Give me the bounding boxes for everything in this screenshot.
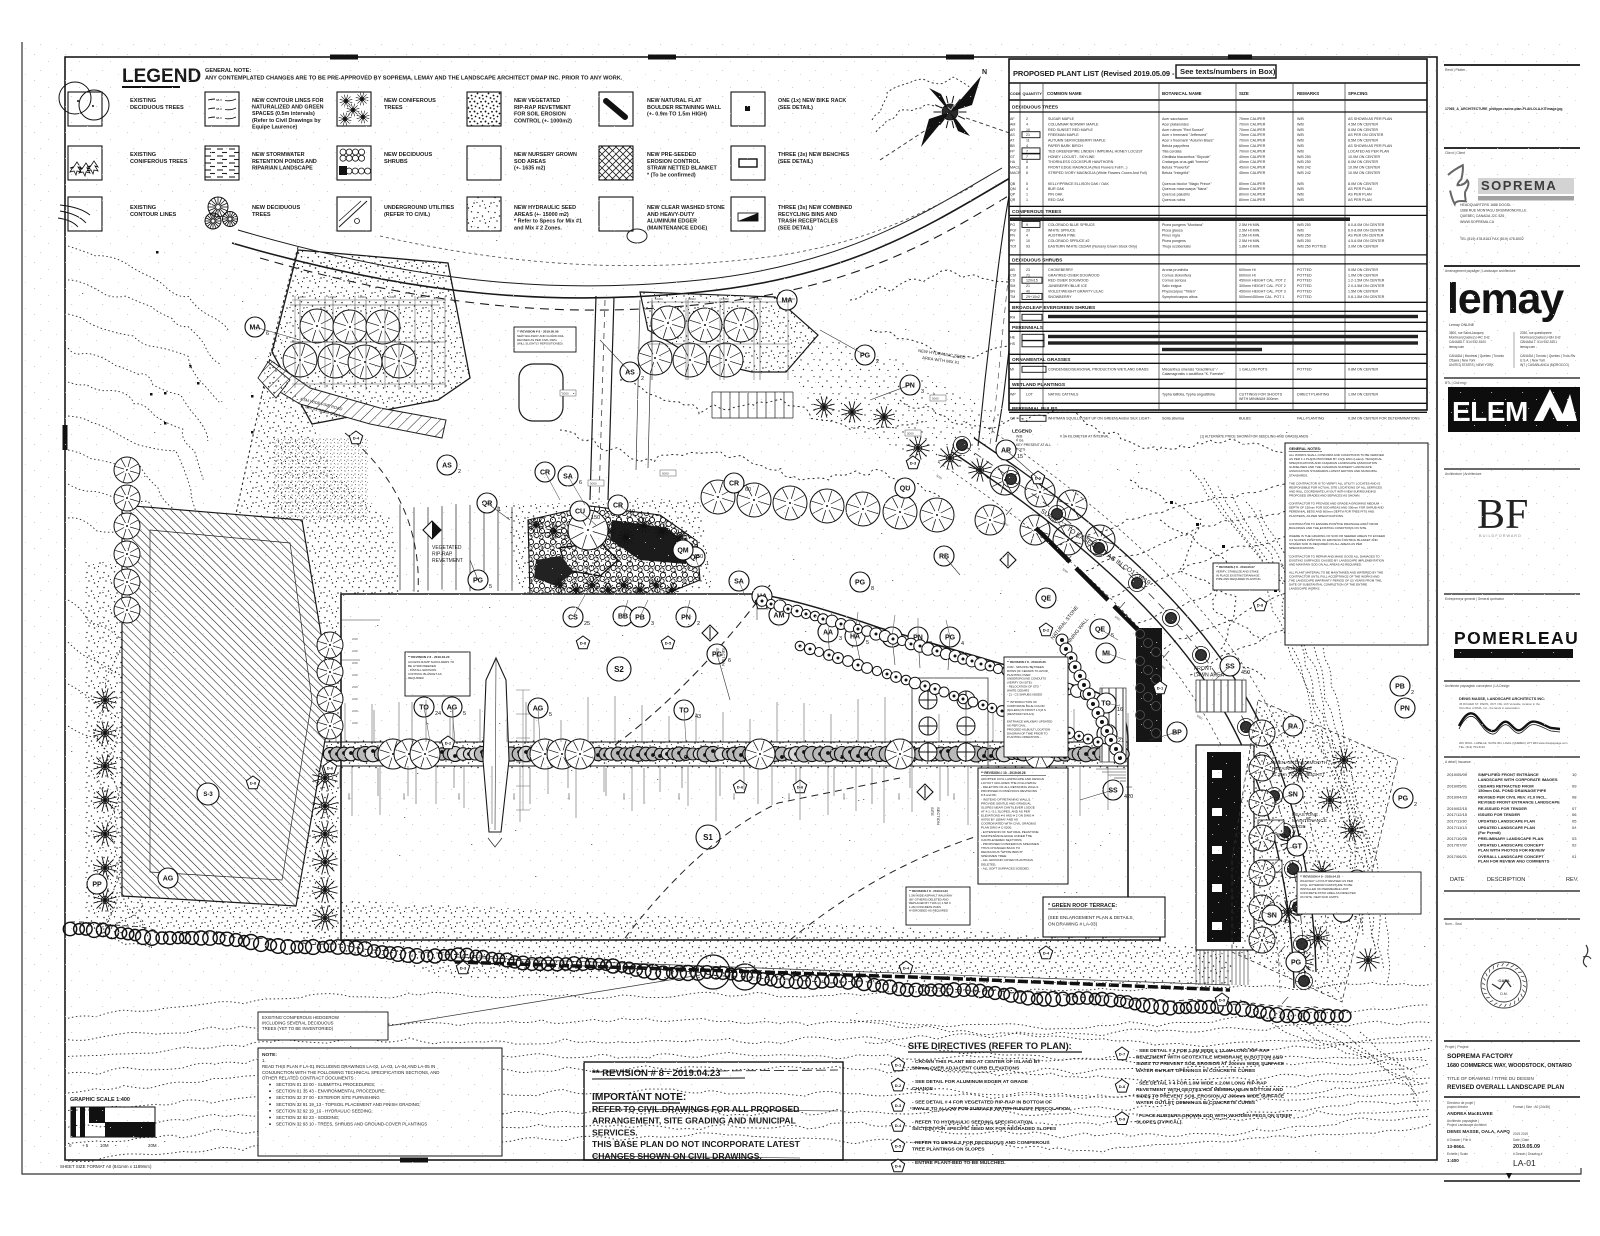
svg-text:Scilla siberica: Scilla siberica (1162, 416, 1184, 420)
svg-text:DECIDUOUS TREES: DECIDUOUS TREES (1012, 105, 1059, 111)
svg-text:QB: QB (1010, 182, 1016, 186)
svg-text:CONDENSED/SEASONAL PRODUCTION: CONDENSED/SEASONAL PRODUCTION WETLAND GR… (1048, 367, 1149, 371)
svg-text:70mm CALIPER: 70mm CALIPER (1239, 149, 1266, 153)
svg-text:SM: SM (1010, 284, 1015, 288)
svg-text:10.0M ON CENTER: 10.0M ON CENTER (1348, 155, 1381, 159)
svg-text:0.8-1.5M ON CENTER: 0.8-1.5M ON CENTER (1348, 295, 1385, 299)
svg-text:70mm CALIPER: 70mm CALIPER (1239, 117, 1266, 121)
svg-text:W/B 250: W/B 250 (1297, 155, 1311, 159)
svg-text:3.0M ON CENTER: 3.0M ON CENTER (1348, 245, 1379, 249)
svg-text:PAPER BARK BIRCH: PAPER BARK BIRCH (1048, 144, 1083, 148)
svg-text:BB: BB (1010, 144, 1015, 148)
svg-text:4.5M ON CENTER: 4.5M ON CENTER (1348, 122, 1379, 126)
svg-text:THORNLESS COCKSPUR HAWTHORN: THORNLESS COCKSPUR HAWTHORN (1048, 160, 1114, 164)
svg-text:80mm CALIPER: 80mm CALIPER (1239, 187, 1266, 191)
svg-text:W/B: W/B (1297, 128, 1304, 132)
svg-text:W/B: W/B (1297, 198, 1304, 202)
svg-text:Symphoricarpos albus: Symphoricarpos albus (1162, 295, 1198, 299)
svg-text:Quercus macrocarpa "Nana": Quercus macrocarpa "Nana" (1162, 187, 1208, 191)
svg-text:BULBS: BULBS (1239, 416, 1251, 420)
svg-text:PROPOSED PLANT LIST (Revised 2: PROPOSED PLANT LIST (Revised 2019.05.09 … (1013, 69, 1175, 78)
svg-text:KEY PRESENT AT ALL: KEY PRESENT AT ALL (1016, 443, 1051, 447)
svg-text:AS PER ON CENTER: AS PER ON CENTER (1348, 133, 1384, 137)
svg-text:71: 71 (1026, 273, 1030, 277)
svg-text:RED OAK: RED OAK (1048, 198, 1065, 202)
svg-text:AUSTRIAN PINE: AUSTRIAN PINE (1048, 234, 1076, 238)
svg-text:PIN OAK: PIN OAK (1048, 193, 1063, 197)
svg-text:W/B: W/B (1297, 117, 1304, 121)
svg-text:COLORADO BLUE SPRUCE: COLORADO BLUE SPRUCE (1048, 223, 1096, 227)
svg-text:4: 4 (1026, 144, 1028, 148)
svg-text:W/B 250: W/B 250 (1297, 234, 1311, 238)
svg-text:CS: CS (1010, 279, 1016, 283)
svg-text:KELLY/PRINCE ELLISON OAK / OAK: KELLY/PRINCE ELLISON OAK / OAK (1048, 182, 1109, 186)
svg-text:HE: HE (1010, 335, 1016, 339)
svg-text:NATIVE CATTAILS: NATIVE CATTAILS (1048, 392, 1079, 396)
svg-text:450mm HEIGHT CAL. POT 2: 450mm HEIGHT CAL. POT 2 (1239, 279, 1286, 283)
svg-text:W/B: W/B (1297, 122, 1304, 126)
svg-text:POTTED: POTTED (1297, 268, 1312, 272)
svg-text:Acer saccharum: Acer saccharum (1162, 117, 1188, 121)
svg-text:POTTED: POTTED (1297, 295, 1312, 299)
svg-text:LOT: LOT (1026, 392, 1034, 396)
svg-text:W/B 250 POTTED: W/B 250 POTTED (1297, 245, 1327, 249)
svg-text:GRAY/RED OSIER DOGWOOD: GRAY/RED OSIER DOGWOOD (1048, 273, 1100, 277)
svg-text:W/B: W/B (1016, 434, 1023, 438)
svg-text:W/B: W/B (1297, 149, 1304, 153)
svg-text:LOCATED AS PER PLAN: LOCATED AS PER PLAN (1348, 149, 1389, 153)
svg-text:POTTED: POTTED (1297, 290, 1312, 294)
svg-text:70mm CALIPER: 70mm CALIPER (1239, 139, 1266, 143)
svg-text:29+10x2: 29+10x2 (1026, 295, 1040, 299)
svg-text:AS SHOWN AS PER PLAN: AS SHOWN AS PER PLAN (1348, 117, 1392, 121)
svg-text:8.0M ON CENTER: 8.0M ON CENTER (1348, 182, 1379, 186)
svg-text:PG: PG (1010, 223, 1015, 227)
svg-text:Calamagrostis x acutiflora "K.: Calamagrostis x acutiflora "K. Foerster" (1162, 372, 1225, 376)
svg-text:BUR OAK: BUR OAK (1048, 187, 1065, 191)
svg-text:Cornus sericea: Cornus sericea (1162, 279, 1186, 283)
svg-text:7: 7 (1026, 149, 1028, 153)
svg-text:JUNEBERRY/BLUE ICE: JUNEBERRY/BLUE ICE (1048, 284, 1088, 288)
svg-text:1 GALLON POTS: 1 GALLON POTS (1239, 367, 1268, 371)
svg-text:WHITE SPRUCE: WHITE SPRUCE (1048, 228, 1076, 232)
svg-text:COLORADO SPRUCE #2: COLORADO SPRUCE #2 (1048, 239, 1090, 243)
svg-text:23: 23 (1026, 268, 1030, 272)
svg-text:PERENNIALS: PERENNIALS (1012, 325, 1044, 331)
svg-text:EASTERN WHITE CEDAR (Nursery G: EASTERN WHITE CEDAR (Nursery Grown Stock… (1048, 245, 1137, 249)
svg-text:ORNAMENTAL GRASSES: ORNAMENTAL GRASSES (1012, 357, 1071, 363)
svg-text:1.0M ON CENTER: 1.0M ON CENTER (1348, 273, 1379, 277)
svg-text:Picea pungens "Montana": Picea pungens "Montana" (1162, 223, 1204, 227)
svg-text:RH: RH (1010, 315, 1016, 319)
svg-text:10: 10 (1026, 128, 1030, 132)
svg-text:Acer platanoides: Acer platanoides (1162, 122, 1189, 126)
svg-text:500mm/450mm CAL. POT 1: 500mm/450mm CAL. POT 1 (1239, 295, 1284, 299)
svg-text:SUGAR MAPLE: SUGAR MAPLE (1048, 117, 1075, 121)
svg-text:1.2-1.5M ON CENTER: 1.2-1.5M ON CENTER (1348, 279, 1385, 283)
svg-text:AS PER PLAN: AS PER PLAN (1348, 198, 1372, 202)
svg-text:Betula "Integrifol": Betula "Integrifol" (1162, 171, 1190, 175)
svg-text:1.8M Ht MIN.: 1.8M Ht MIN. (1239, 245, 1260, 249)
svg-text:0.8M ON CENTER: 0.8M ON CENTER (1348, 367, 1379, 371)
svg-text:Typha latifolia, Typha angusti: Typha latifolia, Typha angustifolia (1162, 392, 1215, 396)
svg-text:AM: AM (1010, 122, 1015, 126)
svg-text:WHITMAN SQUILLS (SET UP ON GRE: WHITMAN SQUILLS (SET UP ON GREEN) And/or… (1048, 416, 1150, 420)
svg-text:VIOLET/WEIGHT GRAVITY LILAC: VIOLET/WEIGHT GRAVITY LILAC (1048, 290, 1104, 294)
svg-text:WP: WP (1010, 392, 1016, 396)
svg-text:SN: SN (1010, 290, 1015, 294)
svg-text:Crataegus crus-galli "Inermis": Crataegus crus-galli "Inermis" (1162, 160, 1210, 164)
svg-text:7: 7 (1026, 155, 1028, 159)
svg-text:450mm HEIGHT CAL. POT 3: 450mm HEIGHT CAL. POT 3 (1239, 290, 1286, 294)
svg-text:6.0M ON CENTER: 6.0M ON CENTER (1348, 160, 1379, 164)
svg-text:TED GREENSPIRE LINDEN / IMPERI: TED GREENSPIRE LINDEN / IMPERIAL HONEY L… (1048, 149, 1144, 153)
svg-text:8.5M ON CENTER: 8.5M ON CENTER (1348, 139, 1379, 143)
svg-text:POTTED: POTTED (1297, 279, 1312, 283)
svg-text:W/B 250: W/B 250 (1297, 239, 1311, 243)
svg-text:FRONT EDGE MAGNOLIA (Red Flowe: FRONT EDGE MAGNOLIA (Red Flowers Full F.… (1048, 166, 1127, 170)
svg-text:AF: AF (1010, 117, 1015, 121)
svg-text:9: 9 (1026, 223, 1028, 227)
svg-text:AB: AB (1010, 268, 1015, 272)
svg-text:Aronia prunifolia: Aronia prunifolia (1162, 268, 1188, 272)
svg-text:MACR: MACR (1010, 171, 1021, 175)
svg-text:6.0-8.0M ON CENTER: 6.0-8.0M ON CENTER (1348, 228, 1385, 232)
svg-text:Quercus palustris: Quercus palustris (1162, 193, 1190, 197)
svg-text:MI: MI (1010, 367, 1014, 371)
svg-text:W/B 242: W/B 242 (1297, 171, 1311, 175)
svg-text:4: 4 (1026, 187, 1028, 191)
svg-text:W/B: W/B (1297, 187, 1304, 191)
svg-text:PERENNIAL BULBS: PERENNIAL BULBS (1012, 406, 1058, 412)
svg-text:Acer x freemanii "Jeffersred": Acer x freemanii "Jeffersred" (1162, 133, 1208, 137)
svg-text:Cornus stolonifera: Cornus stolonifera (1162, 273, 1191, 277)
svg-text:2.5M Ht MIN.: 2.5M Ht MIN. (1239, 223, 1260, 227)
svg-text:PGf: PGf (1010, 228, 1016, 232)
svg-text:Gleditsia triacanthos "Skycole: Gleditsia triacanthos "Skycole" (1162, 155, 1211, 159)
svg-text:Picea pungens: Picea pungens (1162, 239, 1186, 243)
svg-text:# 3A KILOMETER AT INTERVAL: # 3A KILOMETER AT INTERVAL (1060, 434, 1109, 438)
svg-text:2.5M Ht MIN.: 2.5M Ht MIN. (1239, 239, 1260, 243)
svg-text:SNOWBERRY: SNOWBERRY (1048, 295, 1072, 299)
svg-text:2.5M Ht MIN.: 2.5M Ht MIN. (1239, 228, 1260, 232)
svg-text:FALL PLANTING: FALL PLANTING (1297, 416, 1324, 420)
svg-text:W/B: W/B (1297, 133, 1304, 137)
svg-text:See texts/numbers in Box): See texts/numbers in Box) (1180, 67, 1276, 76)
svg-text:GT: GT (1010, 155, 1016, 159)
svg-text:2.5M Ht MIN.: 2.5M Ht MIN. (1239, 234, 1260, 238)
svg-text:11: 11 (1026, 139, 1030, 143)
svg-text:AS PER PLAN: AS PER PLAN (1348, 187, 1372, 191)
svg-text:4: 4 (1026, 234, 1028, 238)
svg-text:# Ga: # Ga (1016, 439, 1023, 443)
svg-text:Physocarpus "Tilden": Physocarpus "Tilden" (1162, 290, 1197, 294)
svg-text:80mm CALIPER: 80mm CALIPER (1239, 198, 1266, 202)
svg-text:45mm CALIPER: 45mm CALIPER (1239, 171, 1266, 175)
svg-text:POTTED: POTTED (1297, 273, 1312, 277)
svg-text:QR: QR (1010, 198, 1016, 202)
svg-text:Miscanthus sinensis "Gracillim: Miscanthus sinensis "Gracillimus" / (1162, 367, 1217, 371)
svg-text:AS: AS (1010, 133, 1015, 137)
svg-text:WITH MINIMUM 300mm: WITH MINIMUM 300mm (1239, 397, 1278, 401)
svg-text:8: 8 (1026, 171, 1028, 175)
svg-text:SPACING: SPACING (1348, 91, 1368, 96)
svg-text:Thuja occidentalis: Thuja occidentalis (1162, 245, 1191, 249)
svg-text:CHOKEBERRY: CHOKEBERRY (1048, 268, 1074, 272)
svg-text:Quercus rubra: Quercus rubra (1162, 198, 1185, 202)
svg-text:SIZE: SIZE (1239, 91, 1249, 96)
svg-text:8: 8 (1026, 166, 1028, 170)
svg-text:W/B: W/B (1297, 228, 1304, 232)
svg-text:TM: TM (1010, 295, 1015, 299)
svg-text:45mm CALIPER: 45mm CALIPER (1239, 166, 1266, 170)
svg-text:Betula papyrifera: Betula papyrifera (1162, 144, 1189, 148)
svg-text:5: 5 (1026, 182, 1028, 186)
svg-text:FREEMAN MAPLE: FREEMAN MAPLE (1048, 133, 1079, 137)
svg-text:WETLAND PLANTINGS: WETLAND PLANTINGS (1012, 382, 1066, 388)
svg-text:Pinus nigra: Pinus nigra (1162, 234, 1180, 238)
svg-text:Quercus bicolor "Magic Prince": Quercus bicolor "Magic Prince" (1162, 182, 1212, 186)
svg-text:REMARKS: REMARKS (1297, 91, 1319, 96)
svg-text:W/B: W/B (1297, 144, 1304, 148)
svg-text:2: 2 (1026, 117, 1028, 121)
svg-text:93: 93 (1026, 245, 1030, 249)
svg-text:1: 1 (1026, 193, 1028, 197)
svg-text:BROADLEAF EVERGREEN SHRUBS: BROADLEAF EVERGREEN SHRUBS (1012, 305, 1096, 311)
svg-text:W/B: W/B (1297, 139, 1304, 143)
svg-text:AS PER PLAN: AS PER PLAN (1348, 193, 1372, 197)
svg-text:8.0M ON CENTER: 8.0M ON CENTER (1348, 128, 1379, 132)
svg-text:W/B 250: W/B 250 (1297, 160, 1311, 164)
svg-text:70mm CALIPER: 70mm CALIPER (1239, 122, 1266, 126)
svg-text:POTTED: POTTED (1297, 284, 1312, 288)
svg-text:60mm CALIPER: 60mm CALIPER (1239, 144, 1266, 148)
svg-text:MACL: MACL (1010, 166, 1020, 170)
svg-text:QP: QP (1010, 193, 1016, 197)
svg-text:Picea glauca: Picea glauca (1162, 228, 1183, 232)
svg-text:AR: AR (1010, 128, 1015, 132)
svg-text:QUANTITY: QUANTITY (1023, 92, 1043, 96)
svg-text:1.5M ON CENTER: 1.5M ON CENTER (1348, 290, 1379, 294)
svg-text:40: 40 (1026, 290, 1030, 294)
svg-text:21: 21 (1026, 284, 1030, 288)
svg-text:HS: HS (1010, 342, 1016, 346)
svg-text:70mm CALIPER: 70mm CALIPER (1239, 128, 1266, 132)
svg-text:21: 21 (1026, 133, 1030, 137)
svg-text:1.0M ON CENTER: 1.0M ON CENTER (1348, 392, 1379, 396)
svg-text:RED OSIER DOGWOOD: RED OSIER DOGWOOD (1048, 279, 1089, 283)
svg-text:29: 29 (1026, 228, 1030, 232)
svg-text:CSf: CSf (1010, 273, 1016, 277)
svg-text:COMMON NAME: COMMON NAME (1047, 91, 1082, 96)
svg-text:4.5-6.0M ON CENTER: 4.5-6.0M ON CENTER (1348, 239, 1385, 243)
svg-text:5.0M ON CENTER: 5.0M ON CENTER (1348, 268, 1379, 272)
svg-text:Tilia cordata: Tilia cordata (1162, 149, 1181, 153)
svg-text:COLUMNAR NORWAY MAPLE: COLUMNAR NORWAY MAPLE (1048, 122, 1099, 126)
svg-text:10.0M ON CENTER: 10.0M ON CENTER (1348, 166, 1381, 170)
svg-text:10.0M ON CENTER: 10.0M ON CENTER (1348, 171, 1381, 175)
svg-text:CUTTINGS FOR SHOOTS: CUTTINGS FOR SHOOTS (1239, 392, 1283, 396)
svg-text:600mm Ht: 600mm Ht (1239, 268, 1256, 272)
svg-text:AS PER ON CENTER: AS PER ON CENTER (1348, 234, 1384, 238)
svg-text:(1) ALTERNATE PRICE SHOWN FOR: (1) ALTERNATE PRICE SHOWN FOR SEEDLING-A… (1200, 434, 1309, 438)
svg-text:300mm HEIGHT CAL. POT 2: 300mm HEIGHT CAL. POT 2 (1239, 284, 1286, 288)
svg-text:W/B 242: W/B 242 (1297, 166, 1311, 170)
svg-text:TOf: TOf (1010, 245, 1016, 249)
svg-text:POTS: POTS (1016, 448, 1026, 452)
svg-text:FP: FP (1010, 149, 1015, 153)
svg-text:W/B: W/B (1297, 193, 1304, 197)
svg-text:W/B: W/B (1297, 182, 1304, 186)
svg-text:HONEY LOCUST - SKYLINE: HONEY LOCUST - SKYLINE (1048, 155, 1095, 159)
svg-text:POTTED: POTTED (1297, 367, 1312, 371)
svg-text:Acer rubrum "Red Sunset": Acer rubrum "Red Sunset" (1162, 128, 1205, 132)
svg-text:Salix exigua: Salix exigua (1162, 284, 1181, 288)
svg-text:40mm CALIPER: 40mm CALIPER (1239, 160, 1266, 164)
svg-text:AS SHOWN AS PER PLAN: AS SHOWN AS PER PLAN (1348, 144, 1392, 148)
svg-text:DIRECT PLANTING: DIRECT PLANTING (1297, 392, 1329, 396)
svg-text:Acer x freemanii "Autumn Blaze: Acer x freemanii "Autumn Blaze" (1162, 139, 1215, 143)
svg-text:2.0-4.5M ON CENTER: 2.0-4.5M ON CENTER (1348, 284, 1385, 288)
svg-text:10: 10 (1026, 239, 1030, 243)
svg-text:Betula "Powerful": Betula "Powerful" (1162, 166, 1190, 170)
svg-text:W/B 250: W/B 250 (1297, 223, 1311, 227)
svg-text:120x15: 120x15 (1026, 279, 1038, 283)
svg-text:RED SUNSET RED MAPLE: RED SUNSET RED MAPLE (1048, 128, 1093, 132)
svg-text:CONIFEROUS TREES: CONIFEROUS TREES (1012, 209, 1062, 215)
svg-text:1: 1 (1026, 198, 1028, 202)
svg-text:80mm CALIPER: 80mm CALIPER (1239, 193, 1266, 197)
svg-text:HA: HA (1010, 160, 1016, 164)
svg-text:0.3M ON CENTER FOR DETERMINA: 0.3M ON CENTER FOR DETERMINATIONS (1348, 416, 1420, 420)
svg-text:CR: CR (1010, 416, 1016, 420)
svg-text:70mm CALIPER: 70mm CALIPER (1239, 133, 1266, 137)
svg-text:AUTUMN SERVICEBERRY MAPLE: AUTUMN SERVICEBERRY MAPLE (1048, 139, 1106, 143)
svg-text:DECIDUOUS SHRUBS: DECIDUOUS SHRUBS (1012, 257, 1063, 263)
svg-text:STRIPED IVORY MAGNOLIA (White: STRIPED IVORY MAGNOLIA (White Flowers Cr… (1048, 171, 1147, 175)
svg-text:40mm CALIPER: 40mm CALIPER (1239, 155, 1266, 159)
svg-text:QM: QM (1010, 187, 1016, 191)
svg-text:8: 8 (1026, 160, 1028, 164)
svg-text:4: 4 (1026, 122, 1028, 126)
svg-text:PN: PN (1010, 234, 1015, 238)
svg-text:BOTANICAL NAME: BOTANICAL NAME (1162, 91, 1202, 96)
svg-text:600mm Ht: 600mm Ht (1239, 273, 1256, 277)
svg-text:6.0-8.0M ON CENTER: 6.0-8.0M ON CENTER (1348, 223, 1385, 227)
svg-text:PP: PP (1010, 239, 1015, 243)
svg-text:80mm CALIPER: 80mm CALIPER (1239, 182, 1266, 186)
